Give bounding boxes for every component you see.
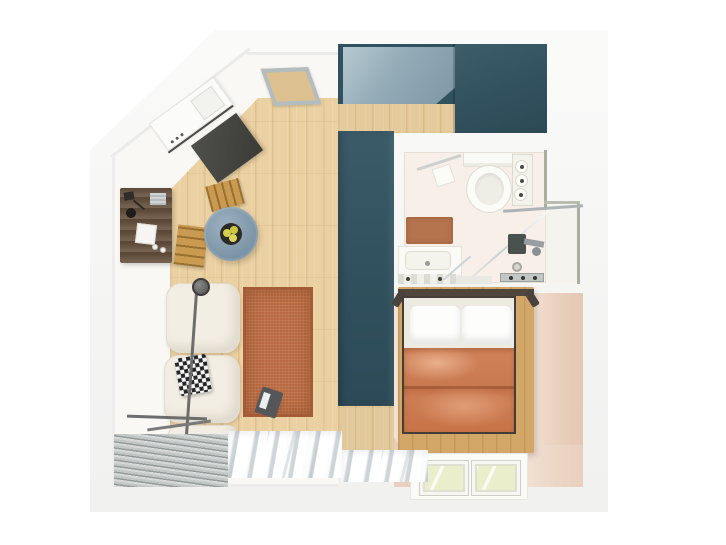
sheer-curtain	[342, 450, 428, 482]
mug	[152, 244, 158, 250]
shower-wall-accent-right	[577, 203, 580, 284]
decor-object	[123, 191, 134, 201]
desk-item	[170, 140, 174, 144]
bedroom-window	[472, 461, 520, 495]
toilet-roll-core	[519, 193, 523, 197]
kitchen-wood-counter	[338, 104, 455, 133]
lemon	[230, 226, 238, 234]
bathroom	[394, 141, 583, 293]
bedroom-right-wall	[540, 293, 583, 445]
sideboard	[120, 188, 172, 263]
toilet-roll-core	[520, 179, 524, 183]
patterned-pillow	[174, 354, 212, 397]
bed-pillow	[462, 304, 512, 344]
radio-screen	[259, 392, 271, 409]
toilet-roll	[514, 188, 527, 201]
vanity-knob	[406, 277, 410, 281]
bath-mat	[406, 217, 453, 244]
toilet-roll	[515, 174, 528, 187]
drain-strip-dot	[509, 276, 513, 280]
wall-shadow-top	[247, 52, 338, 55]
toilet-roll	[515, 160, 528, 173]
mattress	[402, 296, 516, 434]
shower-wall-accent-top	[544, 201, 580, 204]
round-table	[204, 207, 258, 261]
drain-strip-dot	[521, 276, 525, 280]
arc-lamp-head	[192, 278, 210, 296]
duvet	[404, 348, 514, 432]
mug	[160, 247, 166, 253]
vanity-items	[398, 274, 460, 284]
decor-box	[135, 223, 157, 245]
toilet-roll-core	[520, 165, 524, 169]
sheer-curtain	[228, 431, 342, 478]
kitchen-counter-shadow	[343, 47, 455, 107]
drain-strip-dot	[533, 276, 537, 280]
desk-item	[180, 133, 184, 137]
vanity-knob	[438, 277, 442, 281]
duvet-fold	[404, 386, 514, 389]
toilet-seat	[475, 173, 504, 205]
shower-mixer-knob	[532, 247, 541, 256]
shower-threshold	[456, 276, 492, 284]
fruit-bowl	[220, 223, 242, 245]
wardrobe-column	[338, 131, 394, 406]
bathroom-wall-accent-right	[544, 150, 547, 207]
book-stack	[150, 193, 166, 205]
floor-vent-grille	[114, 434, 228, 487]
bed-pillow	[410, 304, 460, 344]
floor-plan-render	[0, 0, 726, 545]
table-lamp-arm	[133, 200, 145, 211]
bed-headboard	[398, 289, 534, 296]
double-bed	[398, 287, 534, 453]
lemon	[229, 234, 237, 242]
drain-strip	[500, 273, 544, 282]
shower-floor	[546, 205, 577, 283]
desk-item	[175, 136, 179, 140]
kitchen-block	[338, 44, 547, 133]
table-lamp	[126, 208, 136, 218]
floor-drain	[512, 262, 522, 272]
kitchen-cabinet-seam	[453, 44, 455, 133]
kitchen-tall-cabinet	[455, 44, 547, 133]
toilet-bowl	[466, 165, 512, 213]
faucet	[425, 261, 430, 266]
